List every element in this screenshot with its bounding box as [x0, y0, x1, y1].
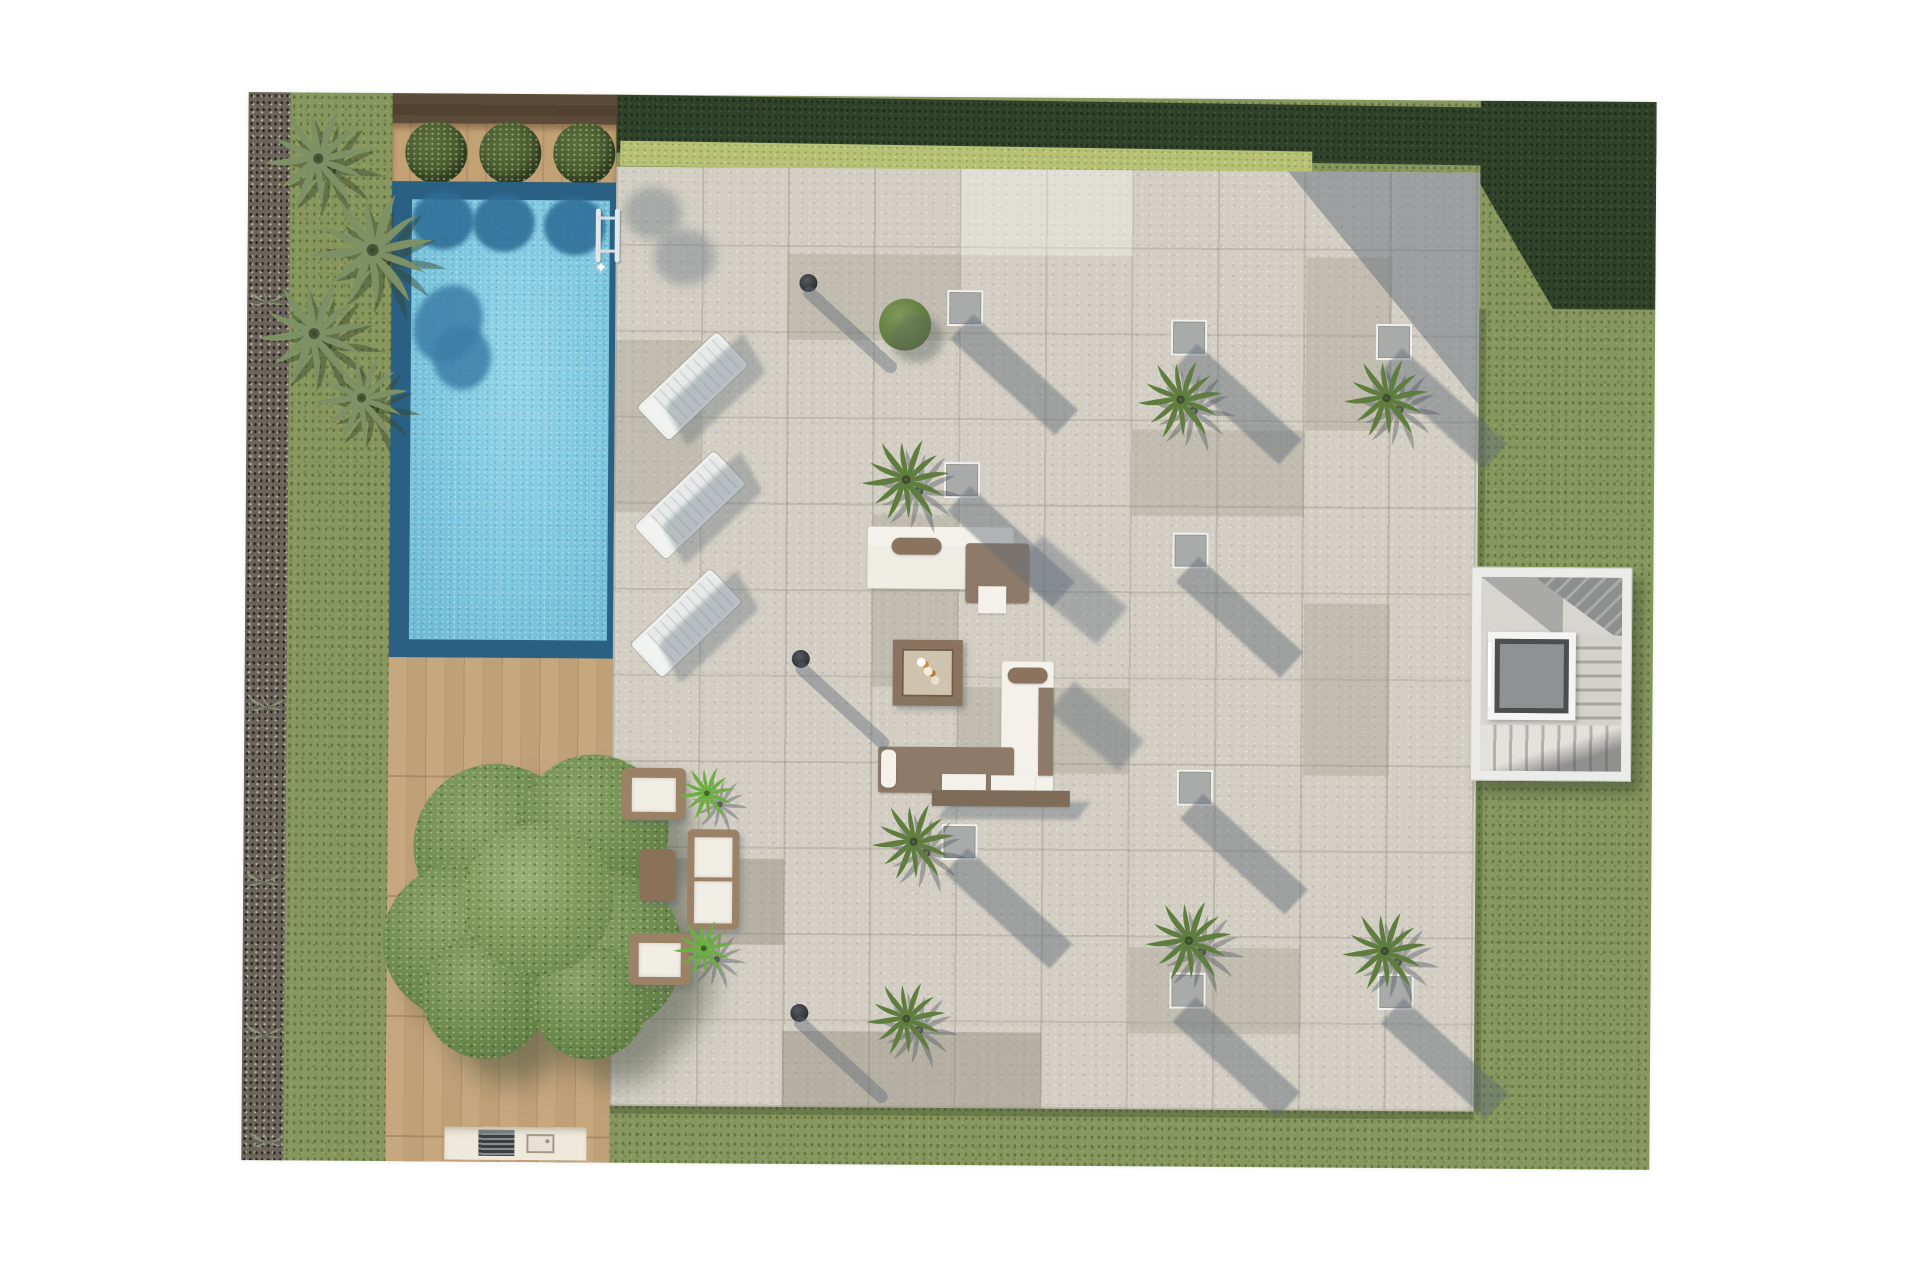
grass-tuft	[243, 868, 283, 892]
lift-shaft	[1487, 632, 1576, 721]
palm-crown	[310, 347, 413, 450]
wicker-side-table	[639, 849, 675, 901]
bbq-grill	[478, 1130, 514, 1156]
bollard-light	[799, 274, 817, 292]
palm-shadow-on-water	[433, 325, 491, 389]
site-plan-render	[241, 92, 1656, 1170]
lift-cabin	[1494, 639, 1569, 714]
stair-flight-bottom	[1480, 725, 1621, 772]
sofa-pillow	[881, 750, 896, 788]
palm-crown	[671, 915, 737, 981]
stair-flight-right	[1573, 635, 1622, 727]
armchair-cushion	[632, 778, 676, 812]
palm-crown	[1338, 905, 1431, 998]
palm-plant	[868, 796, 959, 887]
palm-plant	[858, 431, 955, 528]
planter-cube	[1177, 770, 1213, 806]
palm-crown	[868, 796, 959, 887]
palm-plant	[1134, 353, 1227, 446]
round-bush	[405, 121, 467, 183]
grass-tuft	[246, 693, 286, 717]
planter-cube	[1171, 320, 1207, 356]
round-shrub	[879, 299, 931, 351]
round-bush	[479, 122, 541, 184]
palm-crown	[863, 975, 950, 1062]
tile-patch	[961, 169, 1134, 256]
gravel-border	[241, 92, 290, 1160]
bbq-counter	[444, 1126, 586, 1160]
round-bush	[553, 122, 615, 184]
palm-plant	[1340, 352, 1433, 445]
coffee-table-top	[902, 649, 954, 697]
palm-crown	[676, 762, 738, 824]
bollard-light	[790, 1004, 808, 1022]
sofa-bolster	[1008, 667, 1048, 683]
palm-plant	[676, 762, 738, 824]
grass-tuft	[247, 1129, 287, 1153]
pool-ladder	[594, 209, 622, 263]
bush-shadow-on-water	[473, 194, 535, 252]
stair-core	[1470, 567, 1632, 782]
palm-plant	[310, 347, 413, 450]
palm-plant	[1338, 905, 1431, 998]
planter-cube	[1172, 533, 1208, 569]
palm-plant	[1142, 893, 1237, 988]
stairwell	[1480, 577, 1622, 772]
palm-shadow-blob	[653, 229, 715, 285]
grass-tuft	[244, 1021, 284, 1045]
coffee-table	[892, 640, 962, 706]
tile-patch	[1303, 603, 1390, 776]
bbq-sink	[526, 1134, 554, 1153]
palm-plant	[671, 915, 737, 981]
palm-crown	[1134, 353, 1227, 446]
sofa-cushion	[694, 837, 732, 877]
planter-cube	[947, 290, 983, 326]
palm-crown	[1340, 352, 1433, 445]
bollard-light	[792, 650, 810, 668]
palm-crown	[858, 431, 955, 528]
sofa-back-cushion	[1038, 688, 1054, 776]
palm-plant	[863, 975, 950, 1062]
palm-crown	[1142, 893, 1237, 988]
drinks-set	[917, 658, 926, 667]
side-table-white	[978, 586, 1006, 613]
